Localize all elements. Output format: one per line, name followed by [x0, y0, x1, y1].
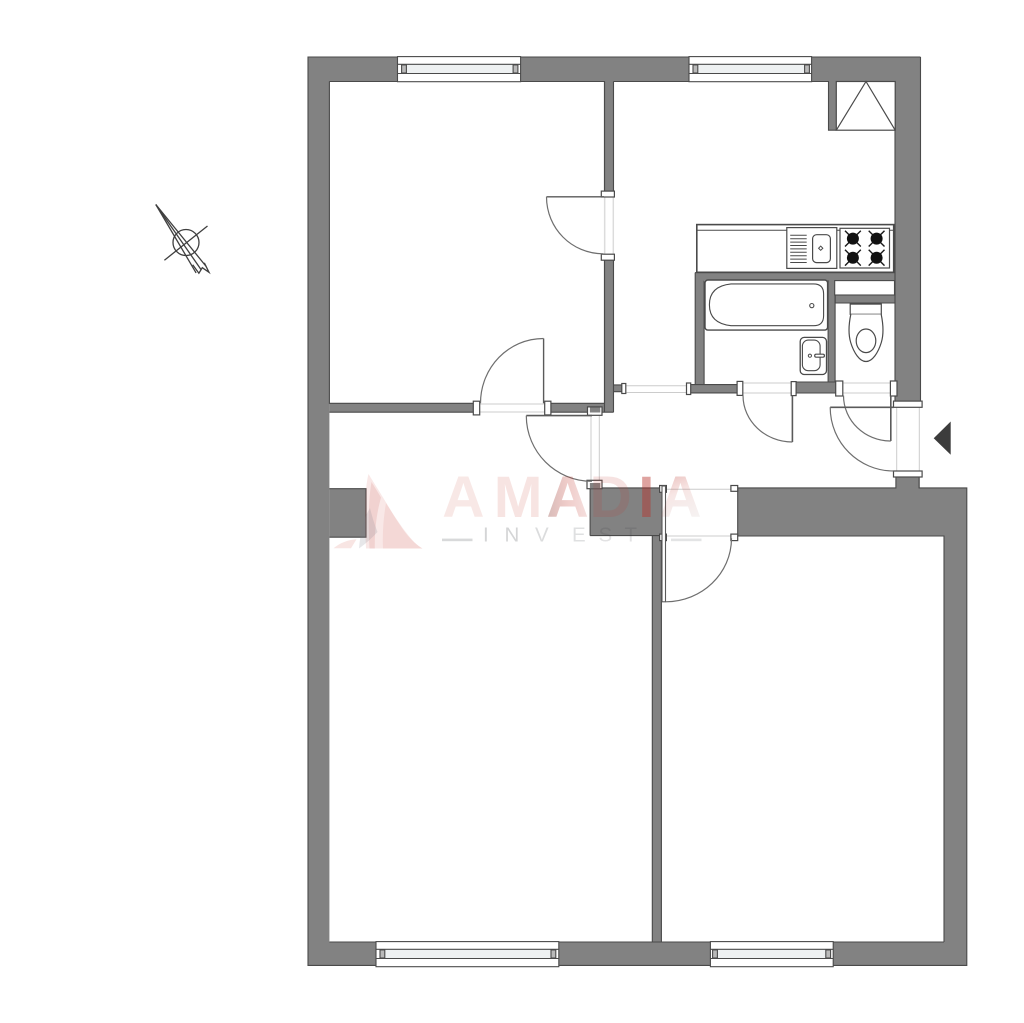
svg-text:D: D: [590, 465, 632, 530]
svg-text:A: A: [547, 465, 589, 530]
svg-text:S: S: [599, 523, 613, 546]
svg-text:V: V: [535, 523, 549, 546]
svg-text:E: E: [572, 523, 586, 546]
svg-text:A: A: [659, 465, 701, 530]
svg-text:I: I: [638, 465, 654, 530]
svg-text:N: N: [505, 523, 520, 546]
svg-text:I: I: [483, 523, 489, 546]
svg-text:A: A: [442, 465, 484, 530]
svg-text:M: M: [494, 465, 543, 530]
svg-text:T: T: [625, 523, 638, 546]
